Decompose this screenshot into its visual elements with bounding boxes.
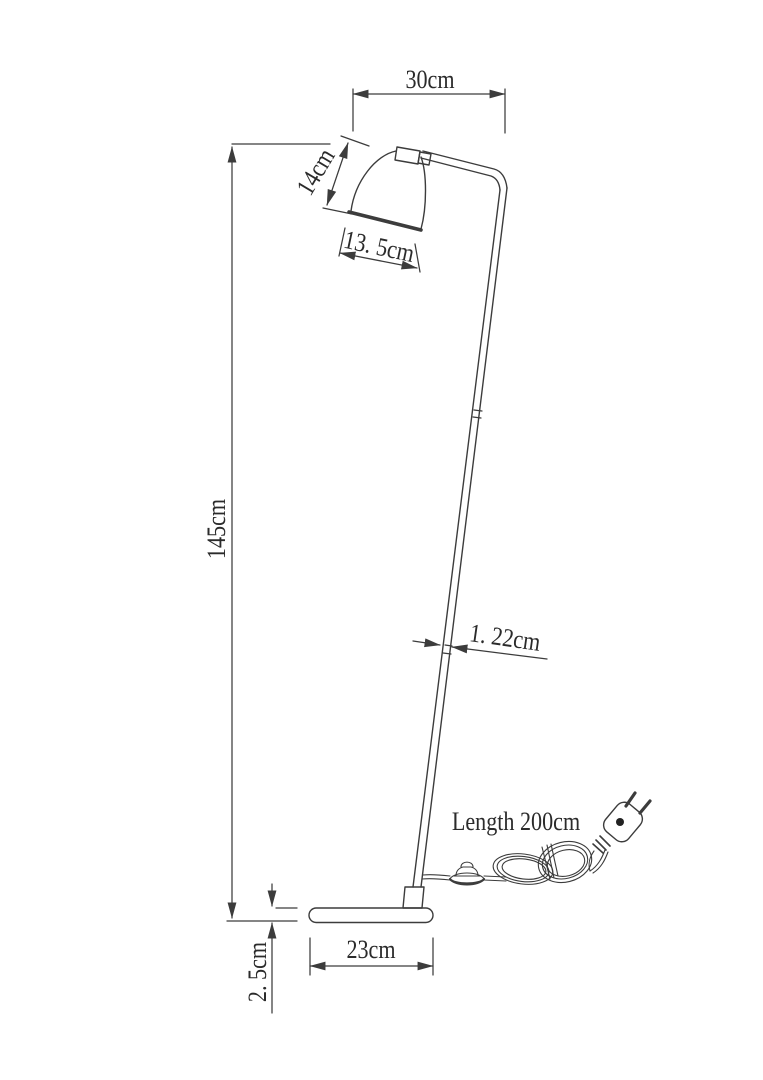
plug-neck-ribs — [593, 836, 610, 853]
pole-joint-upper — [473, 410, 482, 418]
shade-connector — [395, 147, 420, 164]
base-width-23cm-label: 23cm — [346, 937, 395, 963]
cord-length-200cm-label: Length 200cm — [452, 809, 580, 835]
lamp-pole — [403, 188, 507, 908]
base-plate — [309, 908, 433, 923]
arm-reach-30cm-label: 30cm — [405, 67, 454, 93]
dimension-base-thickness-2-5cm — [272, 884, 297, 1013]
lamp-shade — [349, 147, 431, 230]
power-plug — [589, 793, 650, 871]
dimension-arm-reach-30cm — [353, 89, 505, 133]
lamp-drawing-svg — [0, 0, 763, 1080]
shade-left-profile — [351, 151, 396, 211]
plug-screw-dot — [616, 818, 624, 826]
base-thickness-2-5cm-label: 2. 5cm — [245, 942, 271, 1002]
pole-bottom-sleeve — [403, 887, 424, 908]
switch-skirt — [456, 867, 478, 876]
foot-switch — [450, 862, 484, 885]
lamp-arm — [421, 151, 507, 190]
shade-right-profile — [421, 157, 426, 229]
switch-button — [461, 862, 473, 867]
power-cord — [422, 850, 608, 881]
total-height-145cm-label: 145cm — [204, 499, 230, 559]
dimension-total-height-145cm — [227, 144, 330, 921]
cord-coil — [491, 836, 596, 888]
switch-base-shadow — [450, 879, 484, 884]
lamp-base — [309, 908, 433, 923]
floor-lamp-dimension-drawing: 30cm 14cm 13. 5cm 145cm 1. 22cm Length 2… — [0, 0, 763, 1080]
plug-prongs — [626, 793, 650, 813]
